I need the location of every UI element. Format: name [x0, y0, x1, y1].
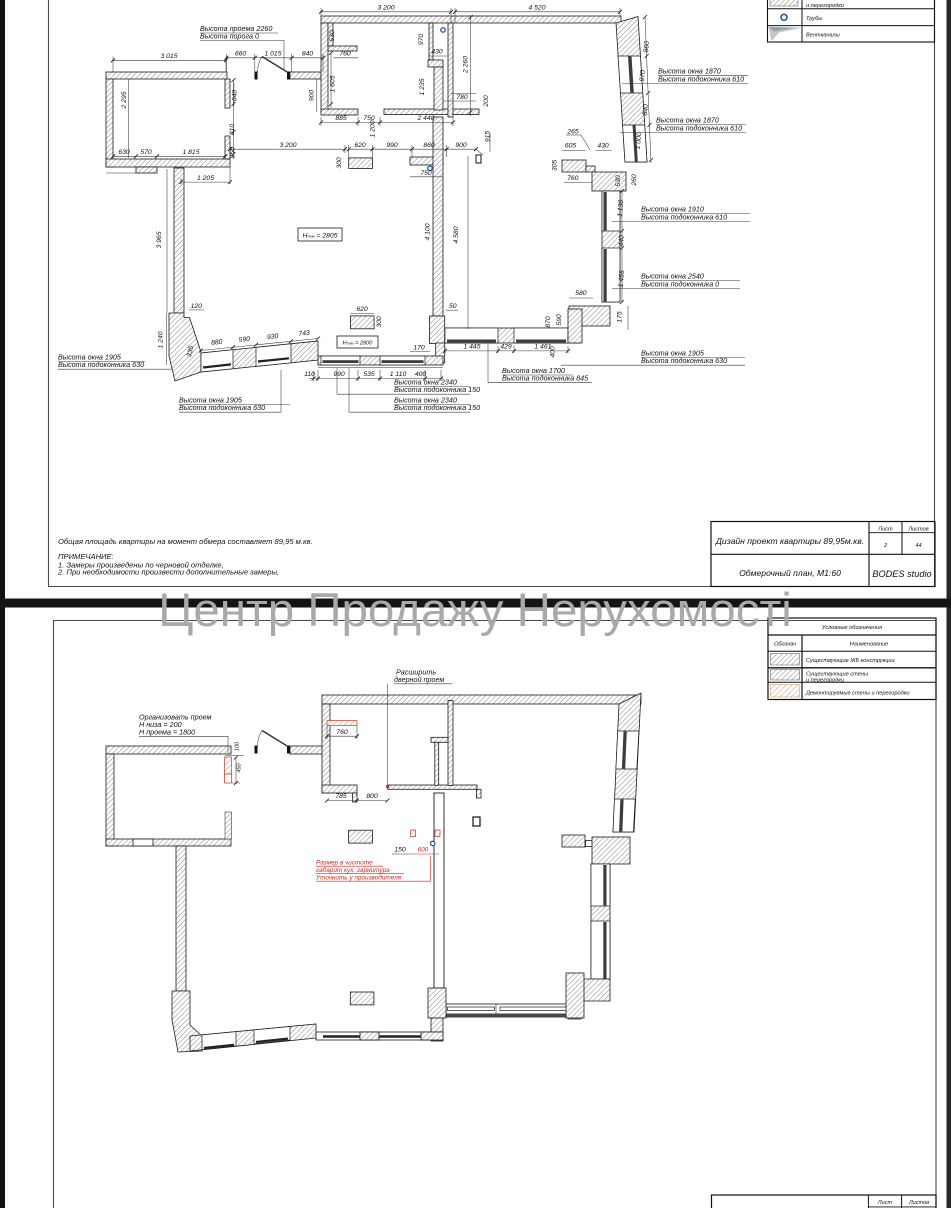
svg-text:900: 900 [455, 142, 467, 149]
svg-text:Вентканалы: Вентканалы [806, 33, 840, 39]
svg-text:300: 300 [376, 316, 383, 328]
svg-text:Демонтируемые стены и перегоро: Демонтируемые стены и перегородки [805, 691, 909, 697]
svg-text:120: 120 [191, 303, 203, 310]
svg-text:970: 970 [418, 34, 425, 46]
svg-text:850: 850 [229, 147, 236, 159]
svg-text:1 205: 1 205 [197, 175, 214, 182]
svg-text:429: 429 [500, 343, 512, 350]
svg-text:Высота подоконника 610: Высота подоконника 610 [658, 74, 744, 83]
svg-text:44: 44 [915, 543, 921, 549]
svg-text:530: 530 [615, 175, 622, 187]
svg-text:2 260: 2 260 [463, 56, 470, 74]
svg-text:175: 175 [616, 311, 623, 323]
svg-text:Размер в чистоте: Размер в чистоте [316, 860, 373, 867]
svg-text:620: 620 [354, 142, 366, 149]
svg-text:1 605: 1 605 [330, 75, 337, 92]
svg-text:Существующие ЖБ конструкции: Существующие ЖБ конструкции [806, 658, 895, 664]
svg-text:885: 885 [335, 115, 347, 122]
svg-text:260: 260 [631, 174, 638, 187]
svg-text:Обмерочный план, М1:60: Обмерочный план, М1:60 [739, 568, 841, 578]
svg-text:750: 750 [420, 170, 432, 177]
svg-text:Листов: Листов [907, 527, 928, 533]
svg-text:570: 570 [140, 149, 152, 156]
svg-text:990: 990 [386, 142, 398, 149]
svg-text:110: 110 [304, 371, 315, 378]
svg-text:и перегородки: и перегородки [806, 678, 844, 684]
svg-text:Высота подоконника 610: Высота подоконника 610 [656, 124, 742, 133]
svg-text:3 965: 3 965 [156, 231, 163, 248]
svg-text:780: 780 [456, 94, 468, 101]
svg-text:430: 430 [597, 143, 609, 150]
svg-text:915: 915 [484, 131, 491, 143]
svg-text:Условные обозначения: Условные обозначения [821, 625, 882, 631]
svg-text:Уточнить у производителя: Уточнить у производителя [315, 874, 402, 882]
svg-text:170: 170 [413, 345, 425, 352]
svg-text:530: 530 [329, 30, 336, 42]
svg-text:535: 535 [363, 371, 375, 378]
svg-text:3 200: 3 200 [377, 5, 394, 12]
svg-text:640: 640 [232, 90, 239, 102]
svg-text:Лист: Лист [877, 527, 893, 533]
svg-text:3 200: 3 200 [279, 142, 296, 149]
svg-text:840: 840 [302, 51, 314, 58]
svg-text:Трубы: Трубы [806, 16, 822, 22]
svg-text:400: 400 [550, 346, 557, 358]
svg-text:265: 265 [566, 128, 579, 135]
svg-text:590: 590 [556, 314, 563, 326]
svg-text:800: 800 [366, 793, 378, 800]
svg-text:810: 810 [229, 124, 236, 136]
svg-text:990: 990 [333, 371, 345, 378]
svg-text:870: 870 [545, 316, 552, 328]
svg-text:1 000: 1 000 [635, 132, 643, 150]
svg-text:1 235: 1 235 [419, 78, 426, 95]
svg-text:200: 200 [483, 95, 490, 108]
svg-text:2. При необходимости произвест: 2. При необходимости произвести дополнит… [57, 568, 279, 577]
svg-text:840: 840 [642, 104, 650, 116]
svg-text:300: 300 [336, 157, 343, 169]
svg-text:1 455: 1 455 [618, 270, 626, 288]
svg-text:430: 430 [431, 49, 443, 56]
svg-text:760: 760 [336, 729, 348, 736]
svg-text:970: 970 [639, 70, 647, 82]
svg-text:450: 450 [237, 762, 243, 772]
svg-text:1 445: 1 445 [463, 343, 480, 350]
svg-text:630: 630 [118, 149, 130, 156]
svg-text:4 520: 4 520 [528, 5, 545, 12]
svg-text:Лист: Лист [877, 1200, 893, 1206]
svg-text:605: 605 [565, 143, 577, 150]
svg-text:930: 930 [267, 333, 279, 341]
svg-text:660: 660 [235, 51, 247, 58]
svg-text:Высота подоконника 610: Высота подоконника 610 [641, 213, 727, 222]
svg-text:3 015: 3 015 [160, 53, 177, 60]
svg-text:Нпом = 2805: Нпом = 2805 [303, 232, 338, 239]
svg-text:Общая площадь квартиры на моме: Общая площадь квартиры на момент обмера … [58, 537, 313, 546]
svg-text:600: 600 [418, 847, 429, 854]
svg-text:1 015: 1 015 [264, 51, 281, 58]
svg-text:Наименование: Наименование [850, 642, 889, 648]
svg-text:Дизайн проект квартиры 89,95м.: Дизайн проект квартиры 89,95м.кв. [715, 536, 864, 546]
svg-text:150: 150 [394, 847, 406, 854]
svg-text:4 580: 4 580 [453, 226, 460, 243]
svg-text:590: 590 [238, 336, 250, 344]
svg-text:4 100: 4 100 [424, 223, 431, 240]
svg-text:50: 50 [449, 303, 457, 310]
svg-text:Н проема = 1800: Н проема = 1800 [139, 728, 195, 737]
svg-text:и перегородки: и перегородки [806, 3, 844, 9]
svg-text:Высота подоконника 0: Высота подоконника 0 [641, 280, 719, 289]
svg-text:Листов: Листов [908, 1200, 929, 1206]
svg-text:1 815: 1 815 [182, 149, 199, 156]
svg-text:620: 620 [356, 306, 368, 313]
svg-text:2 295: 2 295 [121, 91, 128, 109]
svg-text:880: 880 [211, 339, 223, 347]
svg-text:760: 760 [567, 175, 579, 182]
svg-text:900: 900 [309, 90, 316, 102]
svg-text:860: 860 [643, 41, 651, 53]
svg-text:760: 760 [339, 51, 351, 58]
svg-text:1 200: 1 200 [370, 120, 377, 137]
svg-text:Обознач: Обознач [774, 642, 796, 648]
svg-text:BODES studio: BODES studio [872, 569, 931, 579]
svg-text:305: 305 [552, 160, 559, 172]
svg-text:1 130: 1 130 [617, 199, 625, 217]
svg-text:860: 860 [423, 142, 435, 149]
svg-text:1 240: 1 240 [157, 331, 164, 348]
svg-text:440: 440 [618, 235, 626, 247]
svg-text:743: 743 [298, 330, 310, 338]
svg-text:габарит кух. гарнитура: габарит кух. гарнитура [316, 866, 390, 874]
svg-text:580: 580 [575, 290, 587, 297]
svg-text:дверной проем: дверной проем [394, 675, 444, 684]
svg-text:Центр Продажу Нерухомості: Центр Продажу Нерухомості [158, 584, 792, 637]
svg-text:2 440: 2 440 [416, 115, 434, 122]
svg-text:100: 100 [235, 741, 241, 751]
svg-text:785: 785 [335, 793, 347, 800]
